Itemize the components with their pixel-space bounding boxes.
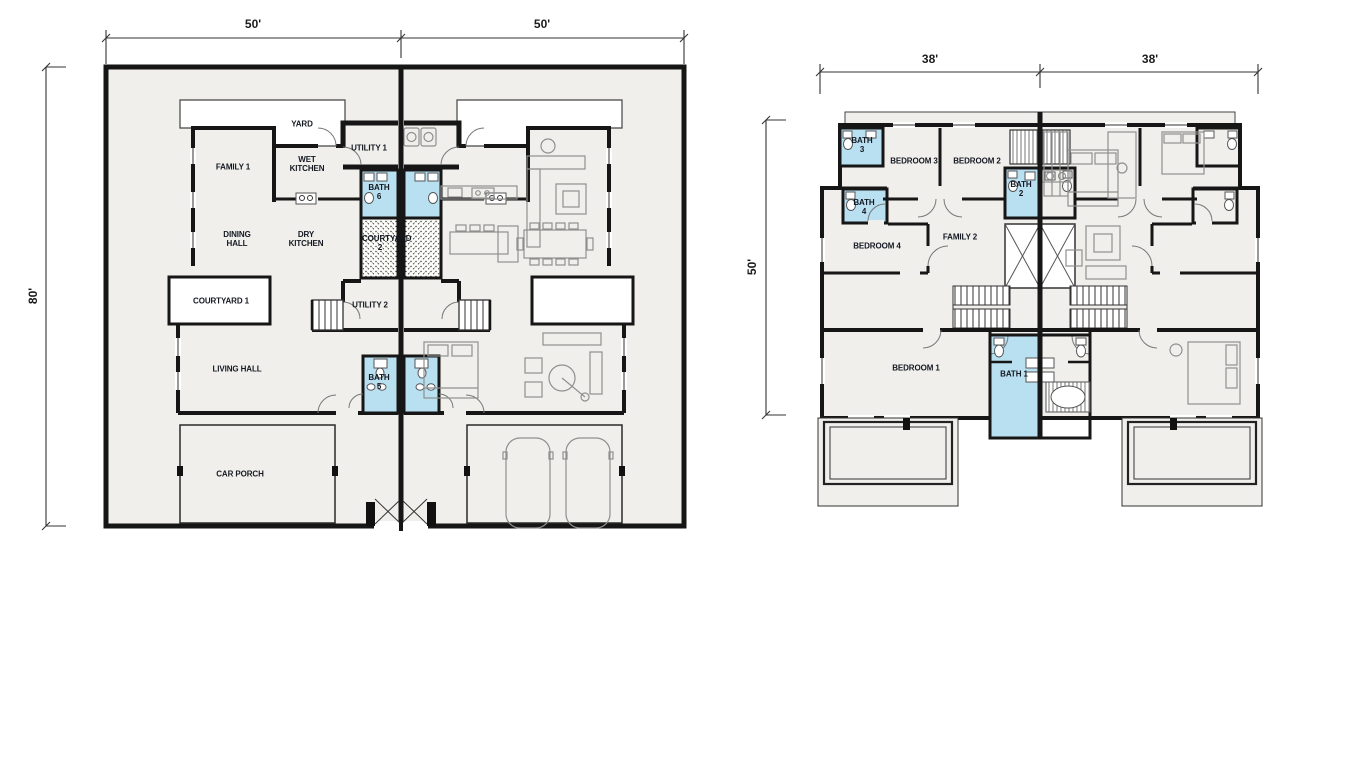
room-label-utility-2: UTILITY 2 xyxy=(351,300,389,309)
floor-plan-page: 50' 50' 80' 38' 38' 50' YARD UTILITY 1 F… xyxy=(0,0,1366,768)
first-floor-plan xyxy=(762,64,1262,506)
room-label-bath-4: BATH 4 xyxy=(851,198,877,216)
closet xyxy=(1005,224,1040,288)
room-label-courtyard-1: COURTYARD 1 xyxy=(192,296,250,305)
room-label-bath-6: BATH 6 xyxy=(366,183,392,201)
room-label-bedroom-3: BEDROOM 3 xyxy=(890,156,938,165)
dimension-label-38-left: 38' xyxy=(922,52,938,66)
dimension-label-38-right: 38' xyxy=(1142,52,1158,66)
window-marks xyxy=(190,148,196,248)
dimension-label-50-right: 50' xyxy=(534,17,550,31)
room-label-living-hall: LIVING HALL xyxy=(212,364,261,373)
room-label-bath-5: BATH 5 xyxy=(366,373,392,391)
room-label-bath-2: BATH 2 xyxy=(1008,180,1034,198)
wardrobe xyxy=(1010,130,1038,164)
room-label-bedroom-2: BEDROOM 2 xyxy=(953,156,1001,165)
room-label-yard: YARD xyxy=(291,119,313,128)
stairs xyxy=(312,300,343,330)
stove-icon xyxy=(296,193,316,204)
ground-floor-plan xyxy=(42,30,688,531)
room-label-bath-1: BATH 1 xyxy=(1000,369,1028,378)
balcony xyxy=(818,418,958,506)
room-label-dining-hall: DINING HALL xyxy=(216,230,258,248)
bathtub xyxy=(1046,382,1090,412)
room-label-courtyard-2: COURTYARD 2 xyxy=(362,234,398,252)
room-label-family-2: FAMILY 2 xyxy=(943,232,977,241)
dimension-label-80-side: 80' xyxy=(26,288,40,304)
plan-linework xyxy=(0,0,1366,768)
dimension-label-50-left: 50' xyxy=(245,17,261,31)
room-label-bedroom-4: BEDROOM 4 xyxy=(853,241,901,250)
room-label-bedroom-1: BEDROOM 1 xyxy=(892,363,940,372)
room-label-dry-kitchen: DRY KITCHEN xyxy=(283,230,329,248)
room-label-bath-3: BATH 3 xyxy=(849,136,875,154)
room-label-car-porch: CAR PORCH xyxy=(216,469,264,478)
room-label-utility-1: UTILITY 1 xyxy=(350,143,388,152)
dimension-label-50-side: 50' xyxy=(745,259,759,275)
room-label-family-1: FAMILY 1 xyxy=(216,162,250,171)
room-label-wet-kitchen: WET KITCHEN xyxy=(284,155,330,173)
